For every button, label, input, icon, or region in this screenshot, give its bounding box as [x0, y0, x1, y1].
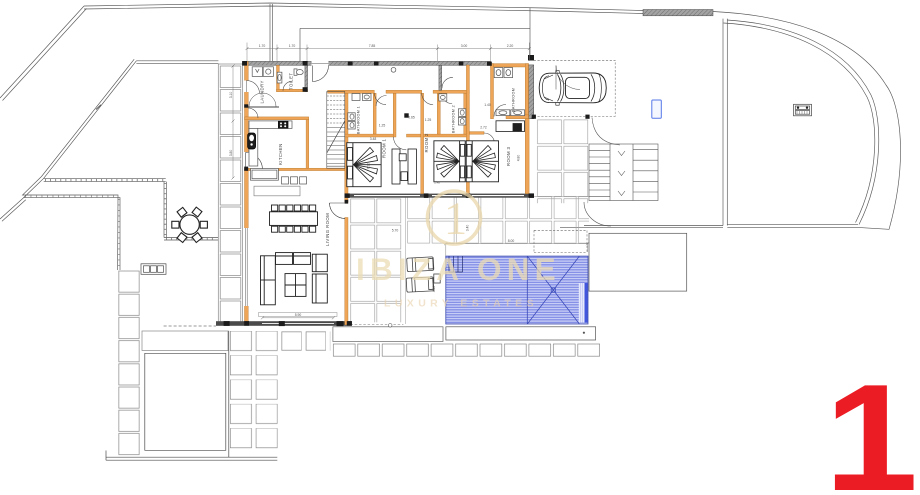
- svg-text:1.25: 1.25: [379, 124, 386, 128]
- svg-text:3.10: 3.10: [229, 92, 233, 99]
- svg-text:4.80: 4.80: [517, 155, 521, 162]
- svg-text:1.48: 1.48: [434, 181, 440, 185]
- svg-text:3.48: 3.48: [370, 137, 377, 141]
- svg-text:LUXURY ESTATES: LUXURY ESTATES: [384, 298, 538, 310]
- svg-text:7.85: 7.85: [369, 44, 376, 48]
- svg-text:3.00: 3.00: [461, 44, 468, 48]
- svg-text:ROOM 2: ROOM 2: [424, 133, 429, 153]
- svg-text:ROOM 1: ROOM 1: [382, 138, 387, 158]
- svg-text:ROOM 3: ROOM 3: [506, 146, 511, 166]
- svg-text:LIVING ROOM: LIVING ROOM: [325, 213, 330, 246]
- svg-text:BATHROOM 1: BATHROOM 1: [357, 106, 361, 134]
- svg-text:1.70: 1.70: [289, 44, 296, 48]
- svg-text:5.90: 5.90: [295, 313, 302, 317]
- svg-text:KITCHEN: KITCHEN: [278, 143, 283, 165]
- svg-text:0.65: 0.65: [408, 116, 415, 120]
- svg-text:1: 1: [824, 354, 918, 495]
- svg-text:1: 1: [444, 193, 468, 245]
- svg-text:2.20: 2.20: [507, 44, 514, 48]
- svg-text:5.70: 5.70: [392, 229, 399, 233]
- svg-text:3.80: 3.80: [229, 150, 233, 157]
- svg-text:BATHROOM: BATHROOM: [512, 88, 516, 112]
- svg-text:TOILET: TOILET: [289, 73, 294, 90]
- svg-text:8.00: 8.00: [508, 239, 515, 243]
- svg-text:BATHROOM 2: BATHROOM 2: [452, 105, 456, 133]
- svg-text:1.25: 1.25: [425, 118, 432, 122]
- svg-text:1.70: 1.70: [259, 44, 266, 48]
- svg-text:LAUNDRY: LAUNDRY: [260, 80, 265, 103]
- svg-text:IBIZA ONE: IBIZA ONE: [356, 251, 561, 287]
- svg-text:7.30: 7.30: [367, 163, 371, 170]
- svg-text:2.72: 2.72: [480, 125, 487, 129]
- svg-text:1.40: 1.40: [484, 103, 491, 107]
